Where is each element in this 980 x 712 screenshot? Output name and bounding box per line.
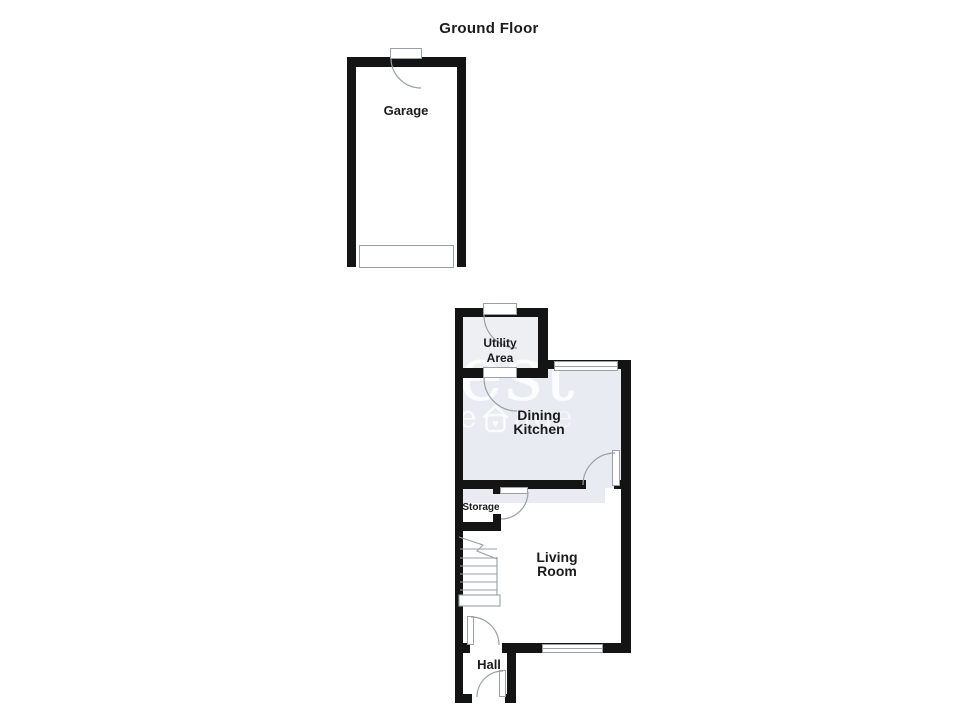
hall-door-leaf: [467, 616, 474, 645]
garage-door-leaf: [390, 48, 422, 59]
wall: [505, 694, 516, 703]
garage-vehicle-door: [359, 245, 454, 268]
front-door-leaf: [499, 670, 506, 697]
wall: [621, 360, 631, 652]
stairs: [459, 537, 500, 606]
garage-label: Garage: [356, 103, 456, 118]
stair-break-line: [459, 537, 497, 559]
wall: [347, 57, 356, 267]
door-arc: [471, 617, 499, 645]
utility-dining-door-leaf: [483, 367, 517, 378]
living-room-label: Living Room: [507, 550, 607, 578]
dining-living-door-leaf: [612, 450, 620, 486]
hall-label: Hall: [449, 657, 529, 672]
stair-base-step: [459, 595, 500, 606]
utility-area-label: Utility Area: [450, 336, 550, 366]
floor-title: Ground Floor: [389, 20, 589, 37]
window: [554, 361, 618, 371]
stair-treads: [460, 549, 497, 590]
wall: [455, 694, 472, 703]
floorplan: Ground Floor est e age: [0, 0, 980, 712]
utility-entry-door-leaf: [483, 303, 517, 315]
dining-kitchen-fill: [463, 488, 605, 503]
window: [542, 644, 603, 653]
dining-kitchen-label: Dining Kitchen: [489, 408, 589, 436]
wall: [457, 57, 466, 267]
storage-label: Storage: [441, 502, 521, 513]
wall: [455, 522, 501, 531]
storage-door-leaf: [500, 487, 528, 494]
